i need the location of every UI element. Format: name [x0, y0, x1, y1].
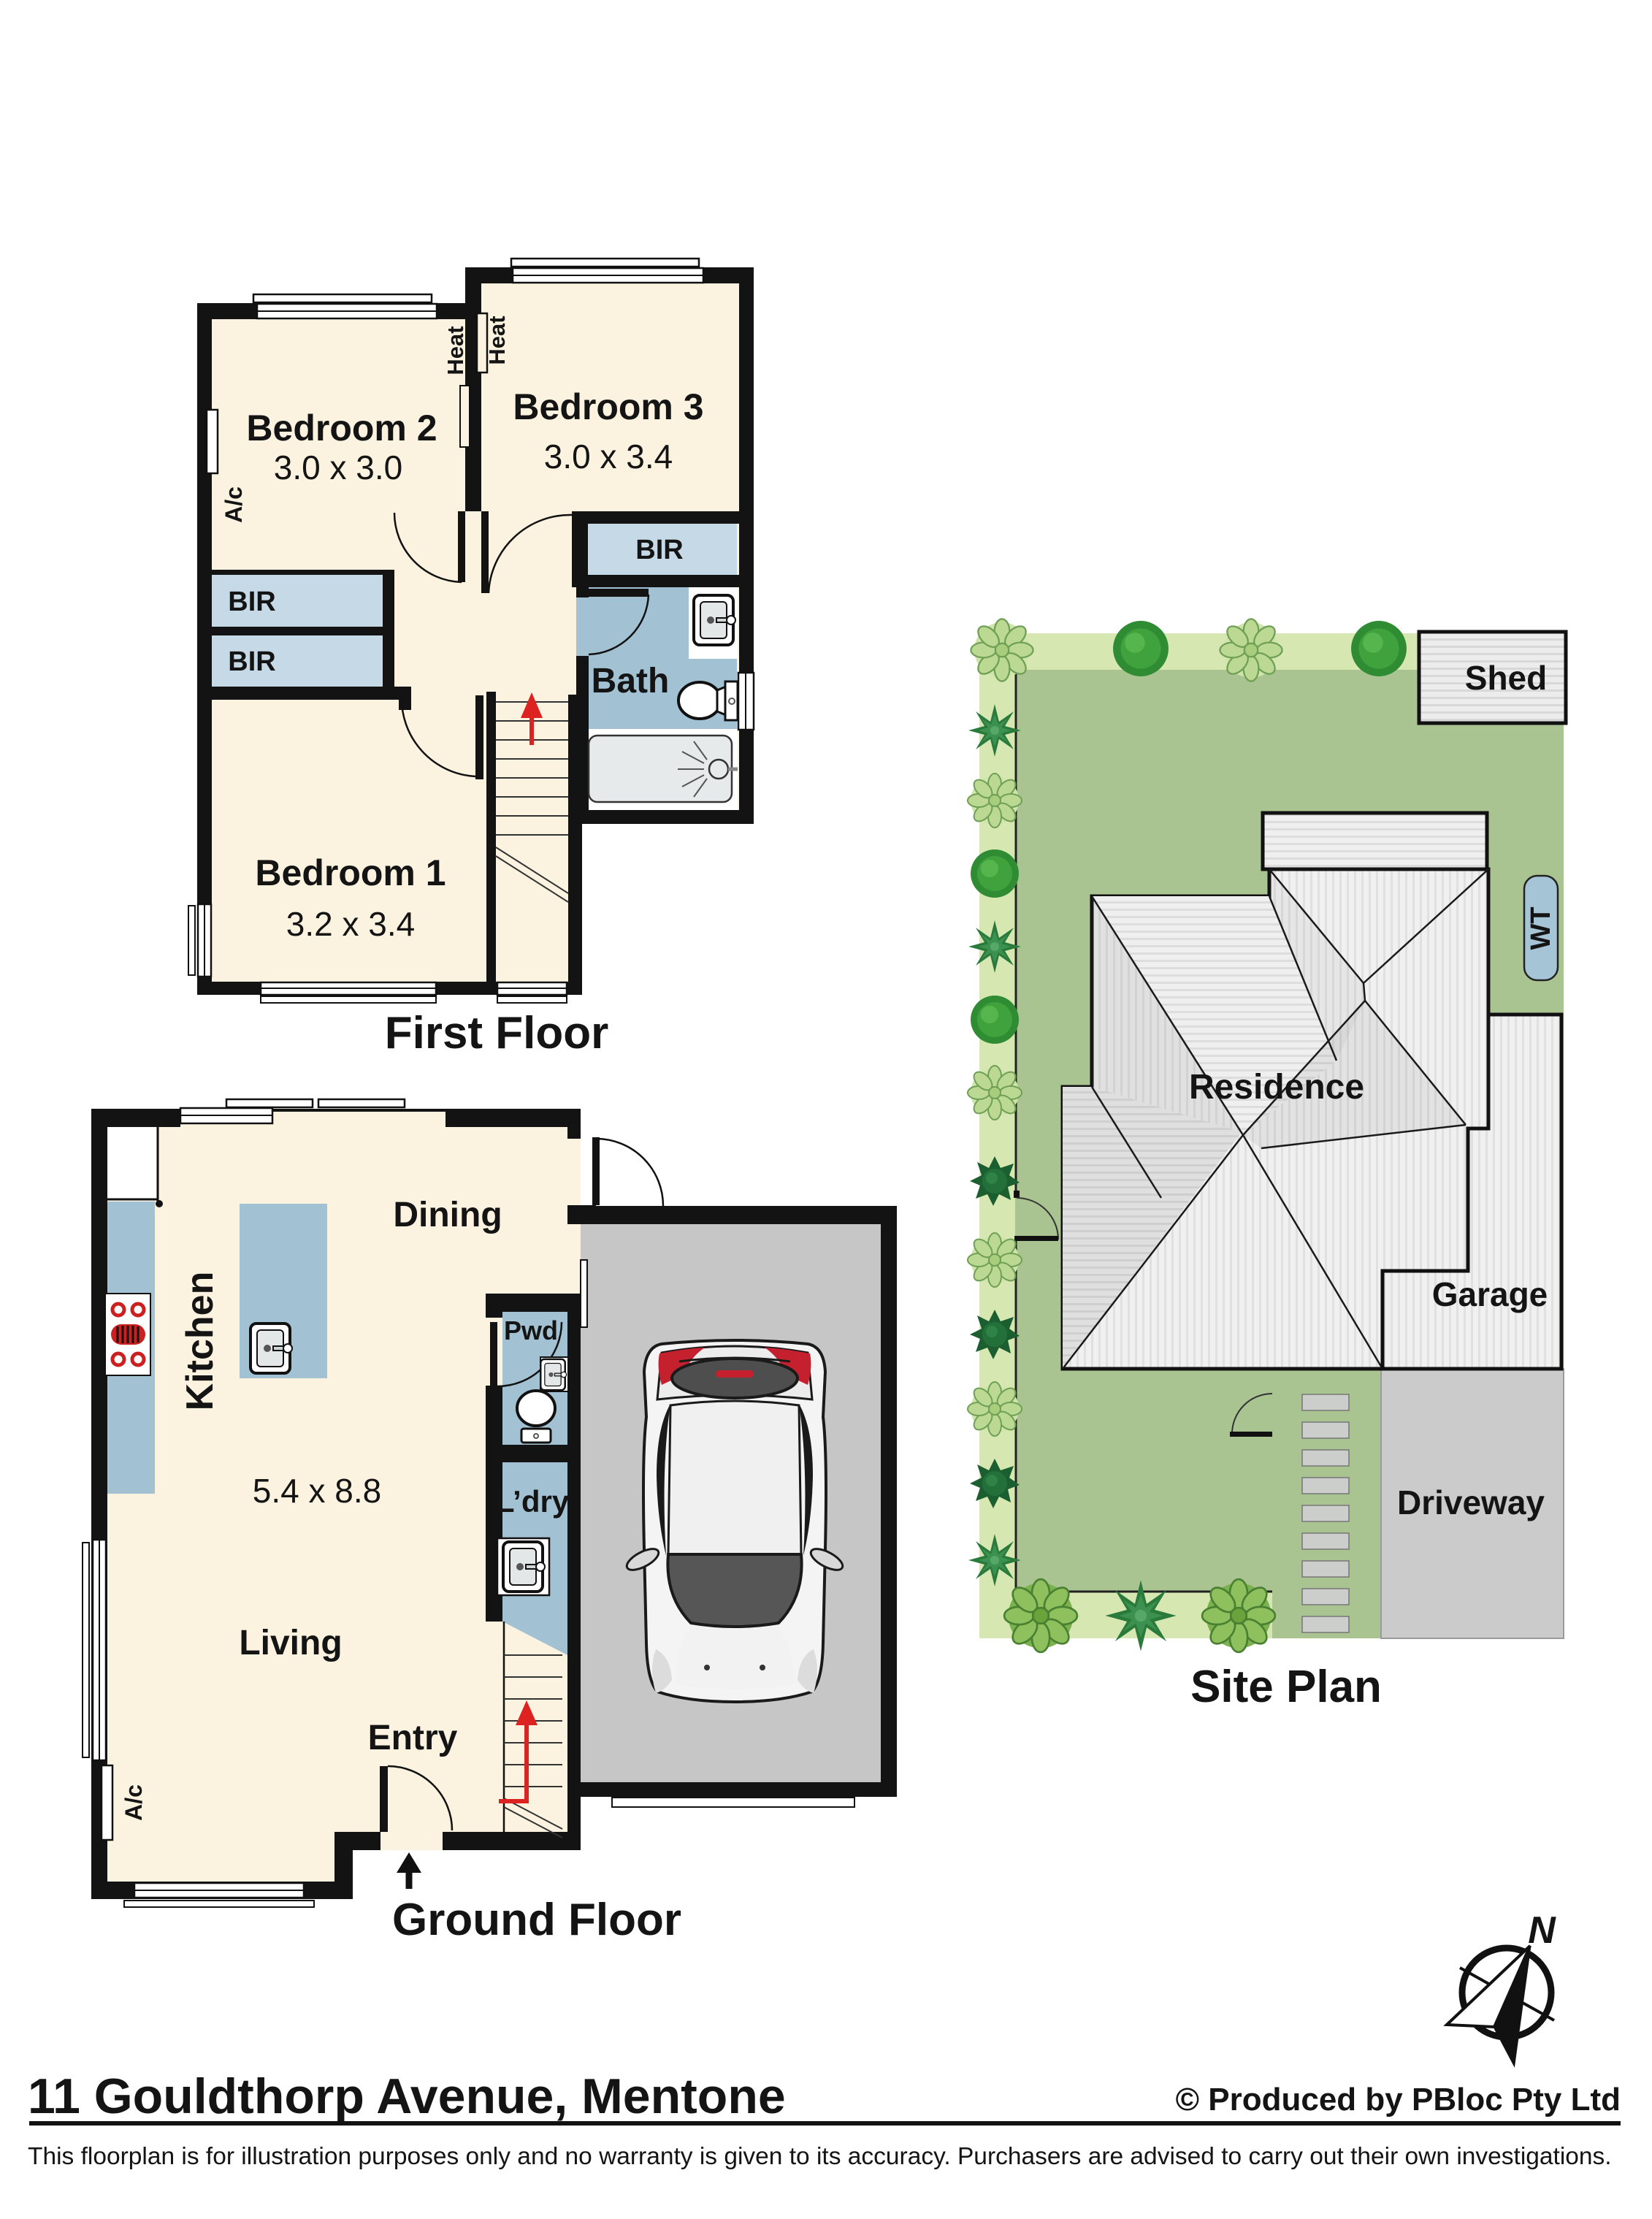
svg-text:Bedroom 2: Bedroom 2: [246, 408, 437, 448]
svg-text:3.0 x 3.4: 3.0 x 3.4: [544, 438, 673, 475]
svg-text:Shed: Shed: [1465, 659, 1547, 697]
svg-text:Living: Living: [239, 1624, 342, 1662]
svg-text:A/c: A/c: [121, 1784, 147, 1821]
svg-text:3.2 x 3.4: 3.2 x 3.4: [286, 905, 415, 943]
svg-text:L’dry: L’dry: [496, 1484, 570, 1519]
svg-text:Entry: Entry: [368, 1719, 458, 1757]
svg-text:BIR: BIR: [228, 646, 275, 677]
svg-text:Bedroom 3: Bedroom 3: [513, 386, 703, 427]
svg-text:© Produced by PBloc Pty Ltd: © Produced by PBloc Pty Ltd: [1176, 2082, 1621, 2117]
svg-text:Pwd: Pwd: [504, 1315, 558, 1345]
svg-text:Heat: Heat: [443, 326, 468, 375]
svg-text:Ground Floor: Ground Floor: [392, 1895, 681, 1945]
svg-text:Heat: Heat: [484, 316, 510, 364]
svg-text:This floorplan is for illustra: This floorplan is for illustration purpo…: [28, 2143, 1612, 2170]
svg-text:A/c: A/c: [221, 486, 247, 523]
svg-text:First Floor: First Floor: [385, 1008, 609, 1058]
svg-text:BIR: BIR: [635, 535, 683, 565]
svg-text:N: N: [1528, 1909, 1556, 1952]
svg-text:Site Plan: Site Plan: [1190, 1662, 1382, 1712]
svg-text:5.4 x 8.8: 5.4 x 8.8: [253, 1472, 381, 1510]
svg-text:WT: WT: [1526, 906, 1556, 950]
svg-text:Driveway: Driveway: [1397, 1483, 1545, 1521]
svg-text:Dining: Dining: [393, 1196, 502, 1234]
svg-text:Kitchen: Kitchen: [179, 1272, 221, 1411]
svg-text:BIR: BIR: [228, 587, 275, 617]
svg-text:Residence: Residence: [1189, 1068, 1364, 1107]
svg-text:Bedroom 1: Bedroom 1: [255, 852, 445, 893]
svg-text:3.0 x 3.0: 3.0 x 3.0: [274, 448, 402, 486]
svg-text:Bath: Bath: [592, 662, 670, 700]
svg-text:Garage: Garage: [1432, 1275, 1548, 1313]
svg-text:11 Gouldthorp Avenue, Mentone: 11 Gouldthorp Avenue, Mentone: [28, 2069, 786, 2124]
